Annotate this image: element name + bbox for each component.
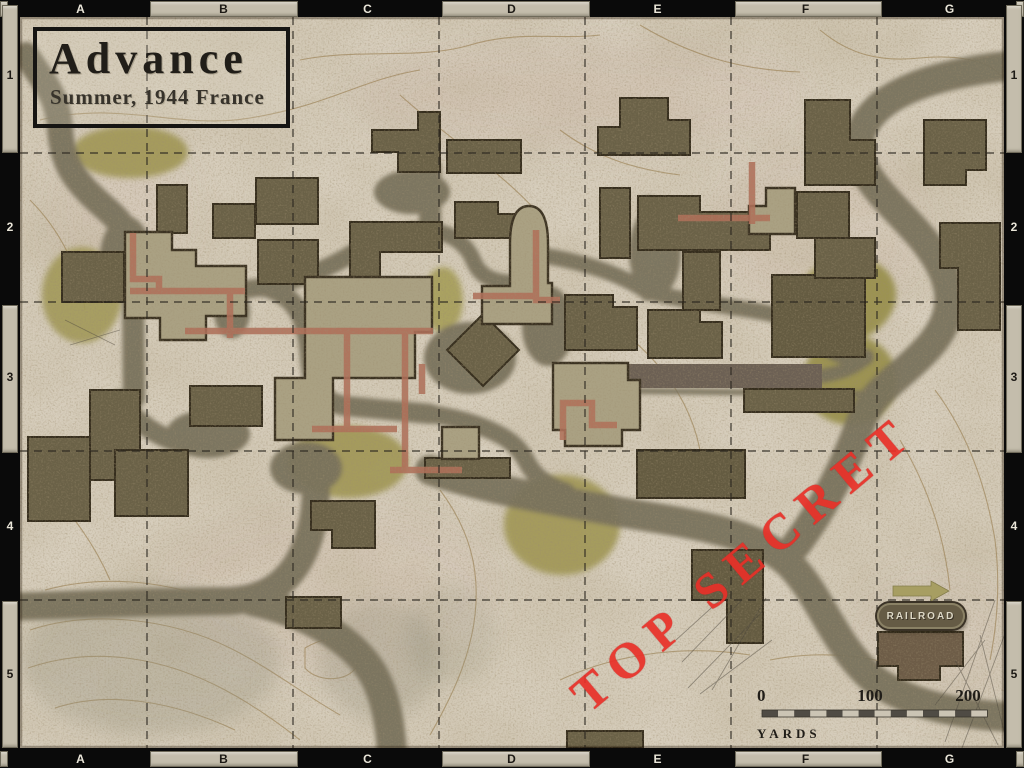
grid-col-label-E-bottom: E	[647, 751, 669, 767]
grid-tab-corner-bl	[0, 751, 8, 767]
grid-col-label-C-top: C	[357, 1, 379, 17]
scale-tick-200: 200	[955, 686, 981, 705]
grid-row-label-3-right: 3	[1004, 370, 1024, 384]
grid-col-label-F-top: F	[795, 1, 817, 17]
grid-col-label-D-bottom: D	[501, 751, 523, 767]
map-subtitle: Summer, 1944 France	[50, 85, 286, 110]
grid-row-label-2-left: 2	[0, 220, 20, 234]
map-title: Advance	[49, 35, 286, 83]
grid-col-label-B-top: B	[213, 1, 235, 17]
grid-row-label-2-right: 2	[1004, 220, 1024, 234]
grid-row-label-1-left: 1	[0, 68, 20, 82]
grid-col-label-C-bottom: C	[357, 751, 379, 767]
grid-col-label-G-top: G	[939, 1, 961, 17]
scale-tick-100: 100	[857, 686, 883, 705]
grid-col-label-A-top: A	[70, 1, 92, 17]
scale-tick-0: 0	[757, 686, 766, 705]
grid-row-label-1-right: 1	[1004, 68, 1024, 82]
grid-row-label-5-left: 5	[0, 667, 20, 681]
grid-row-label-4-right: 4	[1004, 519, 1024, 533]
grid-row-label-5-right: 5	[1004, 667, 1024, 681]
grid-col-label-F-bottom: F	[795, 751, 817, 767]
map-title-box: Advance Summer, 1944 France	[33, 27, 290, 128]
briefing-map-screen: 0 100 200 YARDS TOP	[0, 0, 1024, 768]
grid-tab-corner-br	[1016, 751, 1024, 767]
scale-bar-segments	[762, 710, 987, 717]
grid-row-label-3-left: 3	[0, 370, 20, 384]
grid-col-label-G-bottom: G	[939, 751, 961, 767]
grid-col-label-D-top: D	[501, 1, 523, 17]
grid-col-label-E-top: E	[647, 1, 669, 17]
scale-unit-label: YARDS	[757, 726, 821, 741]
railroad-label: RAILROAD	[877, 603, 965, 629]
grid-col-label-B-bottom: B	[213, 751, 235, 767]
railroad-label-text: RAILROAD	[887, 611, 956, 622]
grid-col-label-A-bottom: A	[70, 751, 92, 767]
grid-row-label-4-left: 4	[0, 519, 20, 533]
